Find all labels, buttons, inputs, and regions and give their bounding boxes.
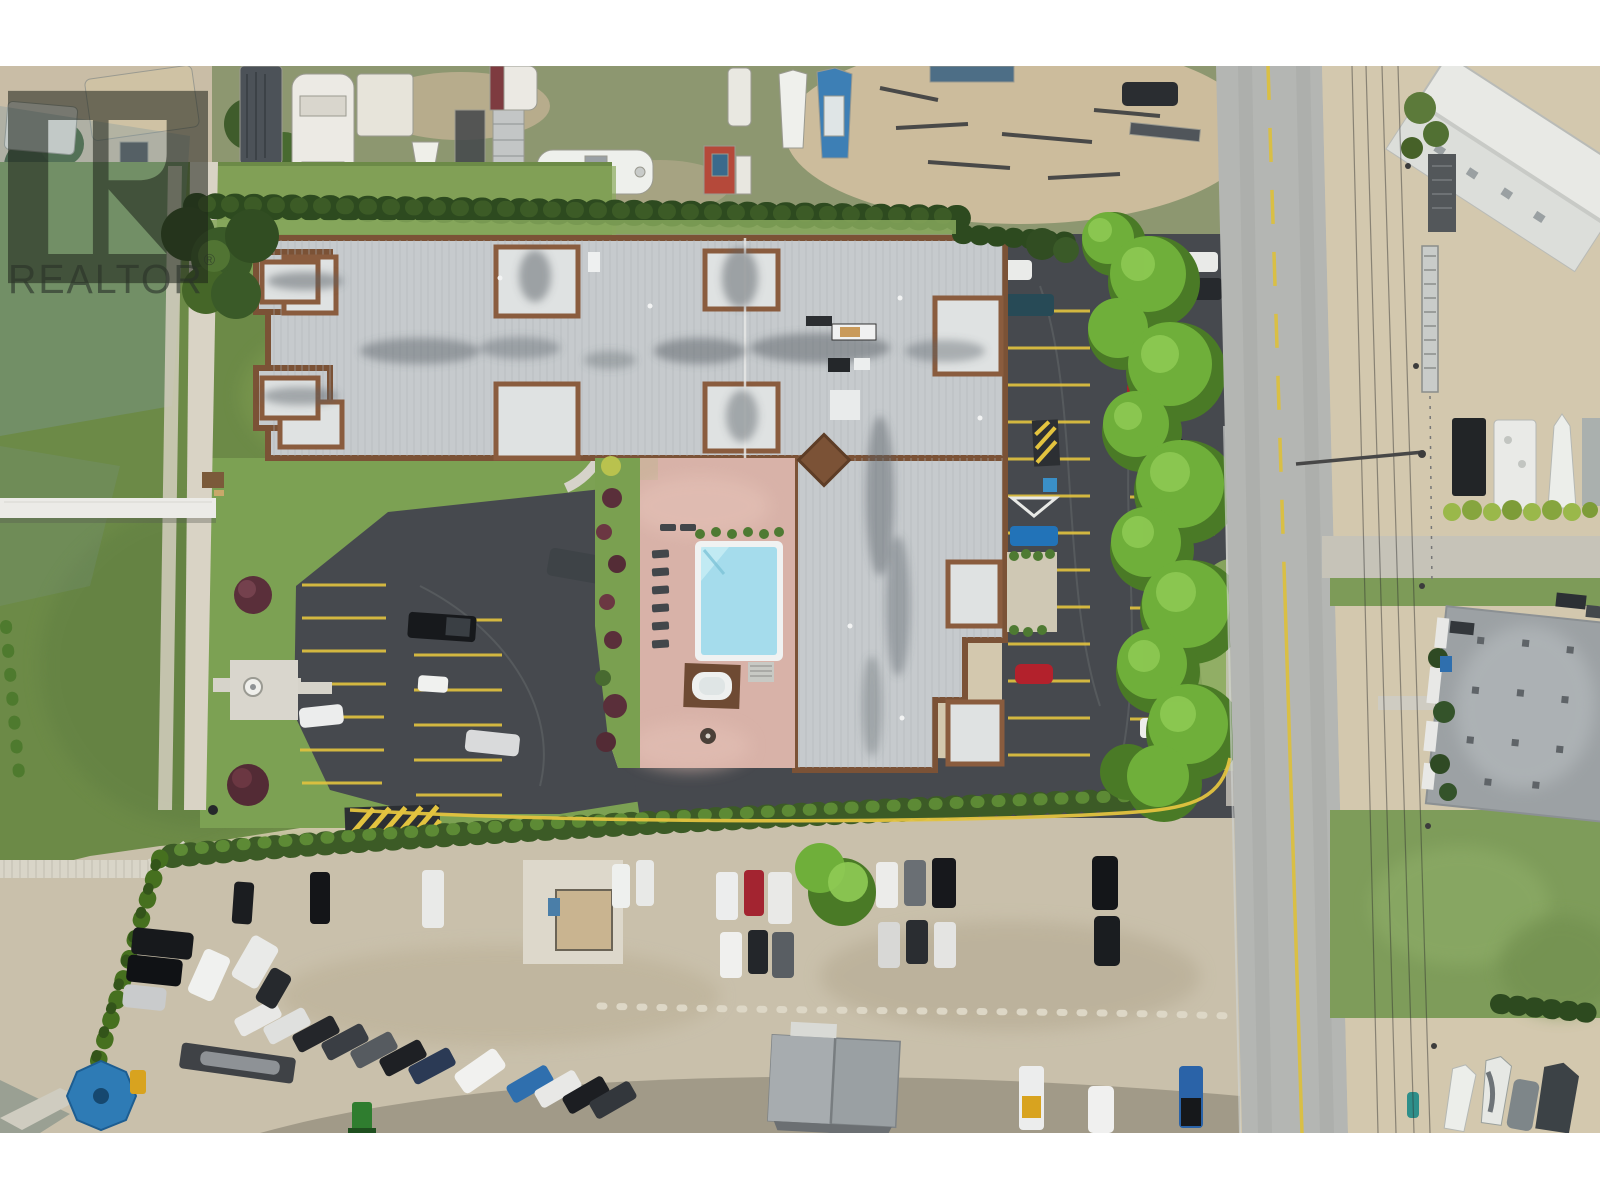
yellow-kayak [130, 1070, 146, 1094]
boardwalk-dock [0, 498, 216, 518]
storage-shed [556, 890, 612, 950]
listing-photo-page: REALTOR® [0, 0, 1600, 1200]
aerial-photo: REALTOR® [0, 66, 1600, 1133]
plaza-pad [230, 660, 298, 720]
utility-trailer [1422, 246, 1438, 392]
aerial-scene [0, 66, 1600, 1133]
side-patio [1007, 552, 1057, 632]
east-properties [1296, 66, 1600, 1133]
pool-courtyard [595, 456, 795, 770]
